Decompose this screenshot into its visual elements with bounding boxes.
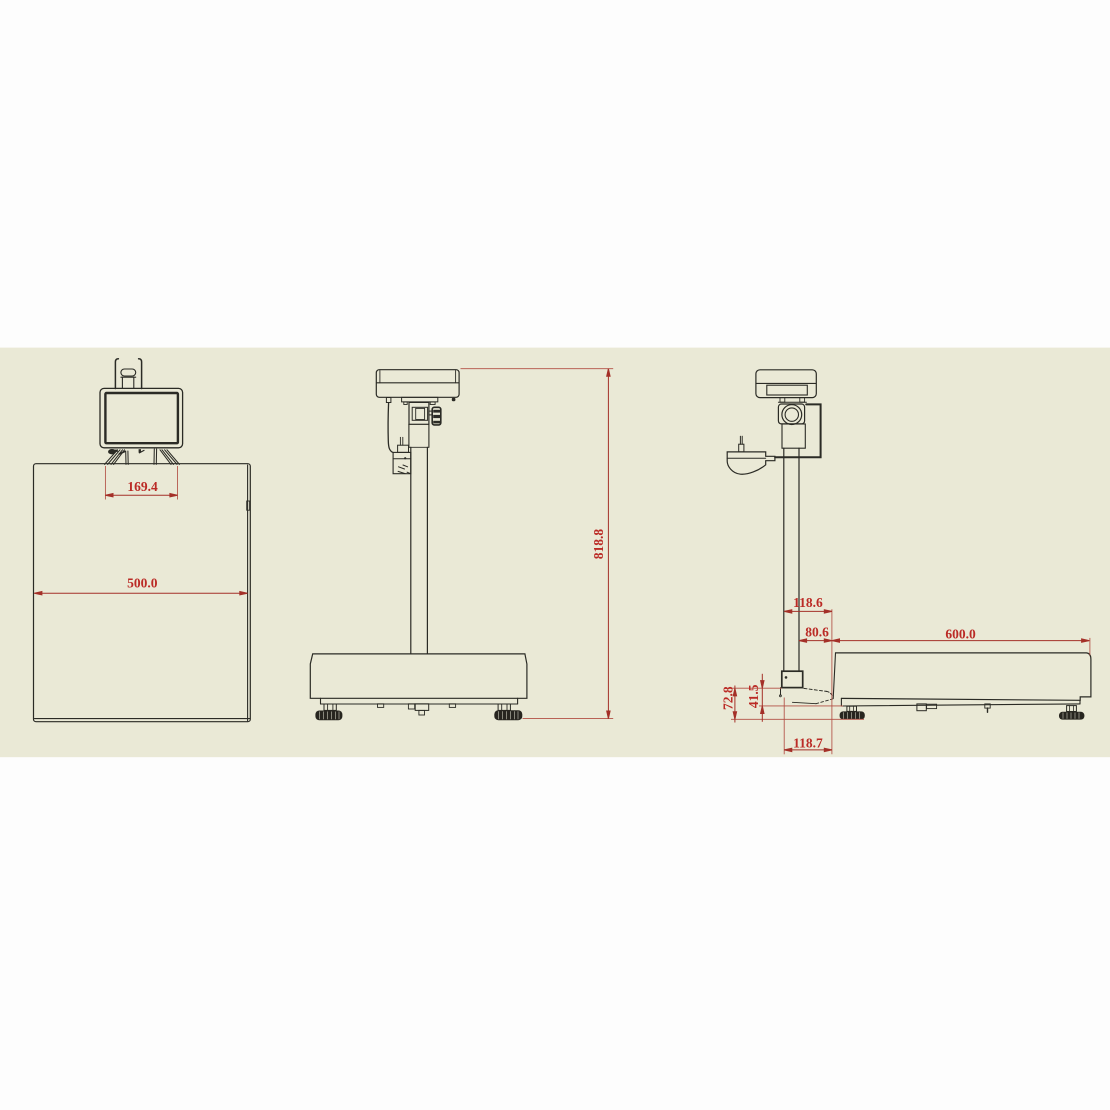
svg-text:818.8: 818.8 — [591, 529, 606, 560]
svg-text:80.6: 80.6 — [805, 625, 829, 640]
svg-text:600.0: 600.0 — [945, 627, 976, 642]
svg-text:41.5: 41.5 — [746, 684, 761, 708]
svg-text:118.7: 118.7 — [793, 735, 823, 750]
svg-text:169.4: 169.4 — [127, 479, 158, 494]
svg-text:72.8: 72.8 — [721, 686, 736, 710]
svg-text:500.0: 500.0 — [127, 575, 158, 590]
svg-text:118.6: 118.6 — [793, 595, 823, 610]
